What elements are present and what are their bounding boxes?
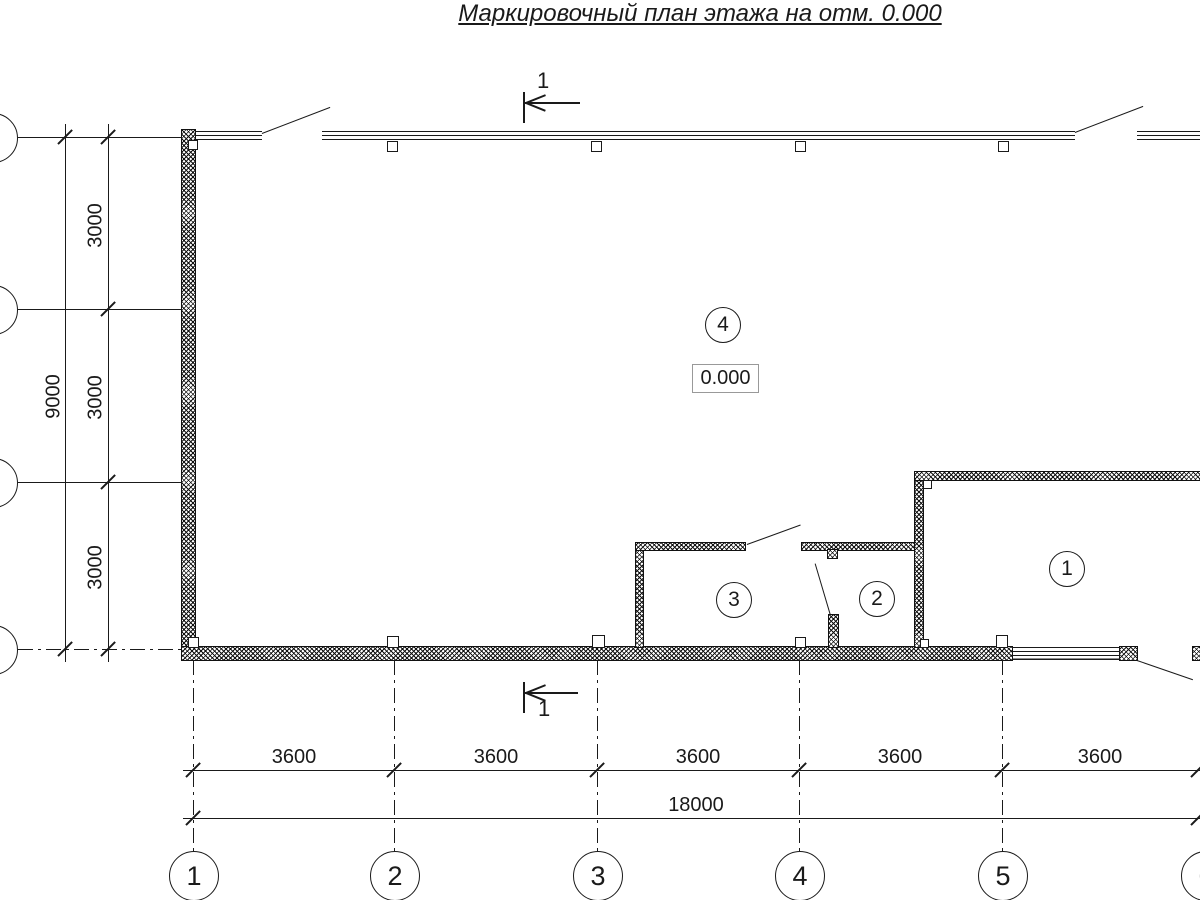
window-band-top-3	[1137, 131, 1200, 140]
axis-line-col-4	[799, 660, 800, 851]
dim-label-col-1: 3600	[254, 746, 334, 769]
axis-line-col-1	[193, 660, 194, 851]
room-tag-1: 1	[1049, 551, 1085, 587]
column-marker-top-5	[998, 141, 1009, 152]
dim-label-row-3: 3000	[85, 528, 108, 608]
room-tag-3-label: 3	[728, 588, 740, 612]
window-band-bottom	[1012, 647, 1120, 660]
dim-label-col-total: 18000	[646, 794, 746, 817]
grid-bubble-1: 1	[169, 851, 219, 900]
room-tag-2-label: 2	[871, 587, 883, 611]
window-band-top-1	[195, 131, 262, 140]
column-marker-bottom-4	[795, 637, 806, 648]
axis-line-col-2	[394, 660, 395, 851]
axis-line-row-top	[18, 137, 182, 138]
wall-exterior-bottom	[182, 647, 1012, 660]
wall-stub-room2-upper	[828, 550, 837, 558]
wall-room2-top	[802, 543, 915, 550]
section-mark-top-label: 1	[537, 68, 549, 94]
axis-line-col-3	[597, 660, 598, 851]
section-mark-bottom-label: 1	[538, 696, 550, 722]
dim-line-horizontal-segments	[183, 770, 1200, 771]
column-marker-top-1	[188, 140, 198, 150]
grid-bubble-5-label: 5	[995, 861, 1010, 892]
column-marker-room1-top	[923, 480, 932, 489]
dim-label-row-2: 3000	[85, 358, 108, 438]
door-leaf-room2	[814, 563, 831, 617]
axis-line-col-5	[1002, 660, 1003, 851]
elevation-value: 0.000	[700, 367, 750, 390]
column-marker-bottom-3	[592, 635, 605, 648]
room-tag-4-label: 4	[717, 313, 729, 337]
dim-label-vertical-total: 9000	[43, 357, 66, 437]
axis-line-row-mid1	[18, 309, 182, 310]
section-mark-bottom-tick	[523, 682, 525, 713]
door-swing-top-left	[262, 107, 331, 134]
section-mark-top-tick	[523, 92, 525, 123]
elevation-mark: 0.000	[692, 364, 759, 393]
grid-bubble-3-label: 3	[590, 861, 605, 892]
door-swing-top-right	[1075, 106, 1144, 133]
dim-line-vertical-segments	[108, 124, 109, 662]
wall-room1-left	[915, 472, 923, 647]
grid-bubble-left-mid1	[0, 285, 18, 335]
column-marker-room1-bottom	[920, 639, 929, 648]
grid-bubble-left-mid2	[0, 458, 18, 508]
room-tag-4: 4	[705, 307, 741, 343]
room-tag-1-label: 1	[1061, 557, 1073, 581]
wall-room3-left	[636, 543, 643, 647]
grid-bubble-4-label: 4	[792, 861, 807, 892]
wall-edge-bottom-right	[1193, 647, 1200, 660]
dim-label-col-4: 3600	[860, 746, 940, 769]
axis-line-row-mid2	[18, 482, 182, 483]
wall-pier-bottom-right	[1120, 647, 1137, 660]
dim-label-col-5: 3600	[1060, 746, 1140, 769]
dim-line-horizontal-total	[183, 818, 1200, 819]
grid-bubble-2: 2	[370, 851, 420, 900]
dim-label-row-1: 3000	[85, 186, 108, 266]
wall-room3-top	[636, 543, 745, 550]
dim-label-col-3: 3600	[658, 746, 738, 769]
grid-bubble-1-label: 1	[186, 861, 201, 892]
grid-bubble-3: 3	[573, 851, 623, 900]
grid-bubble-left-top	[0, 113, 18, 163]
door-swing-room3	[747, 525, 801, 546]
window-band-top-2	[322, 131, 1075, 140]
column-marker-top-4	[795, 141, 806, 152]
column-marker-bottom-1	[188, 637, 199, 648]
wall-exterior-left	[182, 130, 195, 660]
grid-bubble-left-bottom	[0, 625, 18, 675]
room-tag-3: 3	[716, 582, 752, 618]
wall-stub-room2-lower	[829, 615, 838, 647]
drawing-title: Маркировочный план этажа на отм. 0.000	[300, 0, 1100, 28]
wall-room1-top	[915, 472, 1200, 480]
grid-bubble-6: 6	[1181, 851, 1200, 900]
door-swing-bottom-right	[1137, 660, 1193, 680]
grid-bubble-5: 5	[978, 851, 1028, 900]
column-marker-top-3	[591, 141, 602, 152]
dim-label-col-2: 3600	[456, 746, 536, 769]
column-marker-bottom-5	[996, 635, 1008, 648]
floor-plan-drawing: Маркировочный план этажа на отм. 0.000	[0, 0, 1200, 900]
column-marker-bottom-2	[387, 636, 399, 648]
room-tag-2: 2	[859, 581, 895, 617]
column-marker-top-2	[387, 141, 398, 152]
grid-bubble-2-label: 2	[387, 861, 402, 892]
axis-line-row-bottom	[18, 649, 182, 650]
grid-bubble-4: 4	[775, 851, 825, 900]
